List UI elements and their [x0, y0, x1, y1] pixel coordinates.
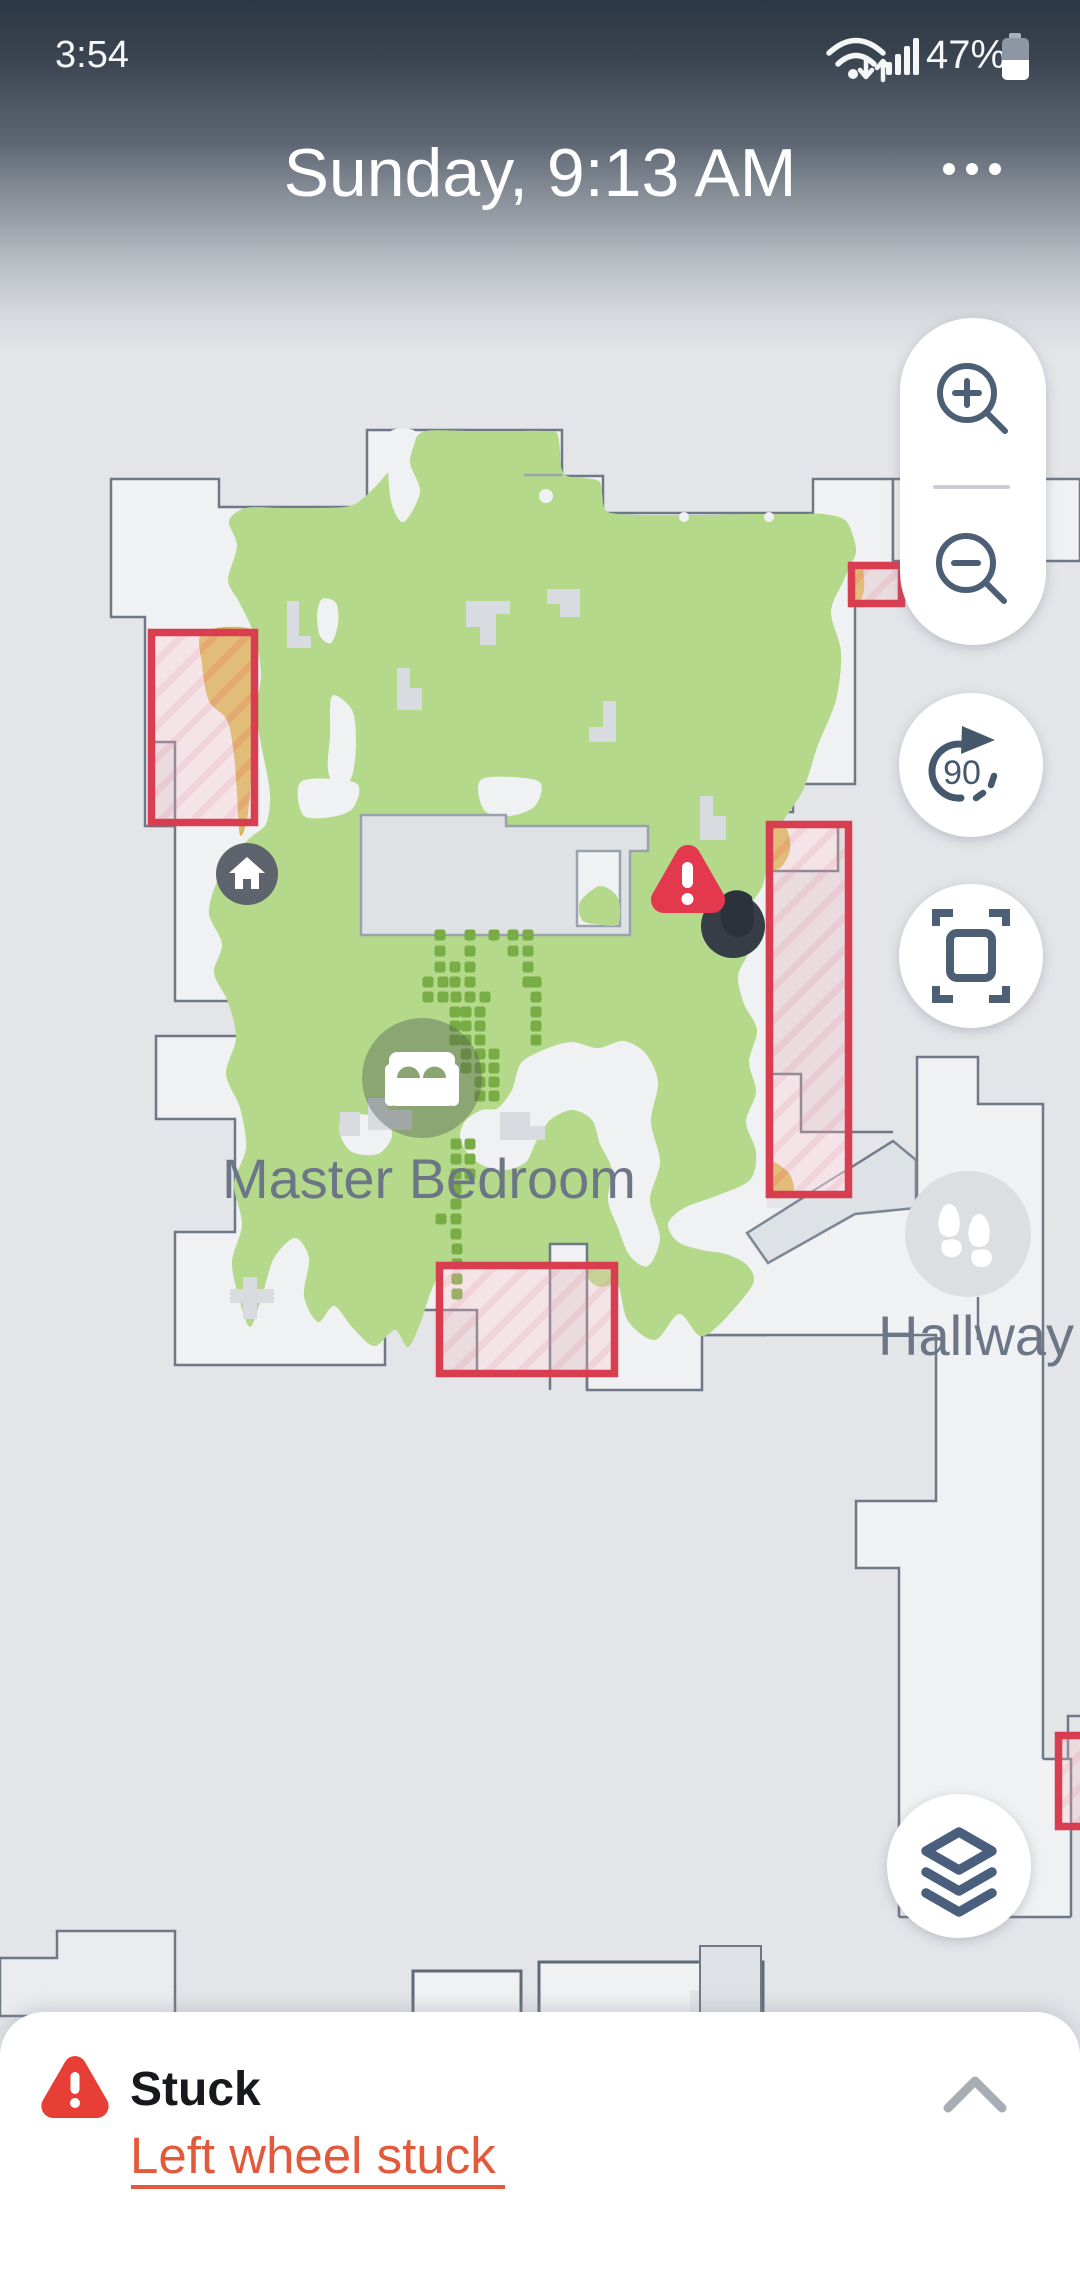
svg-text:3:54: 3:54	[55, 34, 129, 76]
svg-text:Hallway: Hallway	[878, 1304, 1074, 1367]
svg-text:90: 90	[943, 754, 981, 792]
svg-text:Left wheel stuck: Left wheel stuck	[130, 2127, 496, 2184]
svg-text:Sunday, 9:13 AM: Sunday, 9:13 AM	[284, 135, 797, 211]
svg-text:47%: 47%	[926, 33, 1006, 77]
svg-text:Master Bedroom: Master Bedroom	[222, 1147, 636, 1210]
svg-text:Stuck: Stuck	[130, 2063, 261, 2116]
